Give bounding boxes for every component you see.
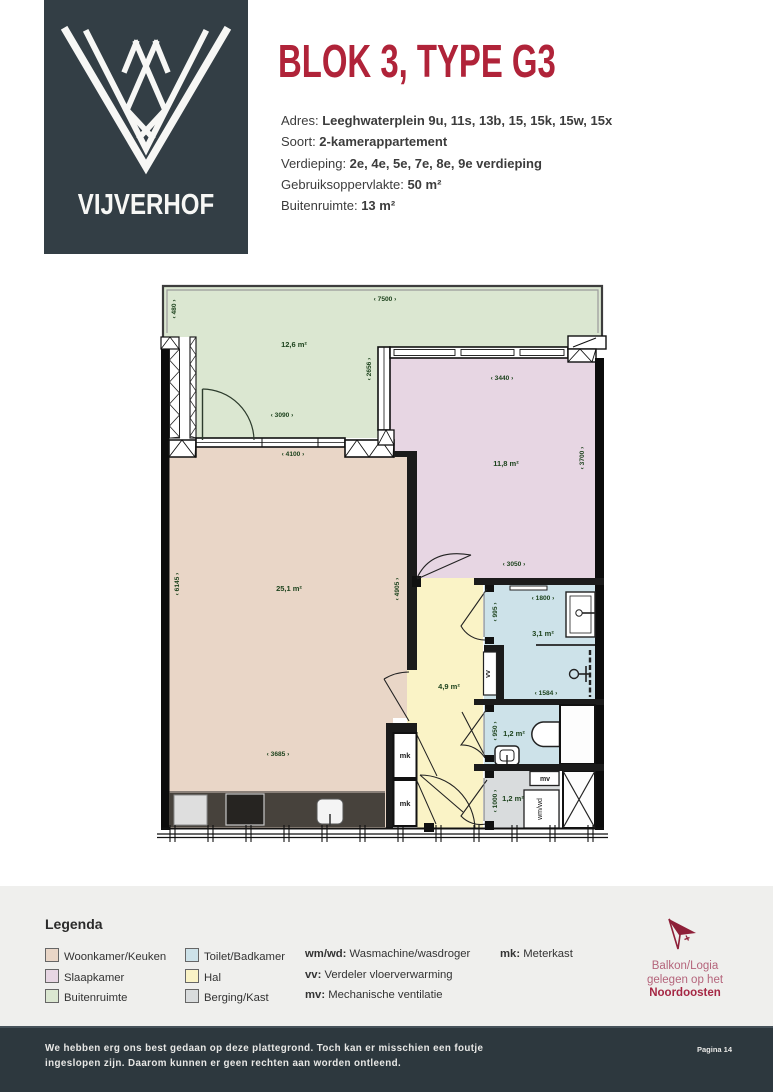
svg-text:‹ 3700 ›: ‹ 3700 › <box>579 447 586 470</box>
svg-text:1,2 m²: 1,2 m² <box>503 729 525 738</box>
svg-text:‹ 4905 ›: ‹ 4905 › <box>394 578 401 601</box>
svg-text:‹ 995 ›: ‹ 995 › <box>492 602 499 621</box>
svg-text:wm/wd: wm/wd <box>537 798 544 821</box>
svg-text:‹ 7500 ›: ‹ 7500 › <box>374 296 397 303</box>
svg-text:mv: mv <box>540 776 550 783</box>
svg-text:‹ 3090 ›: ‹ 3090 › <box>271 412 294 419</box>
svg-text:‹ 4100 ›: ‹ 4100 › <box>282 451 305 458</box>
svg-text:3,1 m²: 3,1 m² <box>532 629 554 638</box>
svg-text:‹ 1800 ›: ‹ 1800 › <box>532 595 555 602</box>
svg-text:‹ 480 ›: ‹ 480 › <box>171 299 178 318</box>
svg-text:‹ 6145 ›: ‹ 6145 › <box>174 573 181 596</box>
svg-text:mk: mk <box>400 799 412 808</box>
svg-text:‹ 3685 ›: ‹ 3685 › <box>267 751 290 758</box>
svg-text:‹ 950 ›: ‹ 950 › <box>492 721 499 740</box>
svg-text:‹ 3050 ›: ‹ 3050 › <box>503 561 526 568</box>
svg-text:vv: vv <box>485 670 492 678</box>
svg-text:mk: mk <box>400 751 412 760</box>
svg-text:11,8 m²: 11,8 m² <box>493 459 519 468</box>
svg-text:‹ 1584 ›: ‹ 1584 › <box>535 690 558 697</box>
svg-text:25,1 m²: 25,1 m² <box>276 584 302 593</box>
svg-text:‹ 3440 ›: ‹ 3440 › <box>491 375 514 382</box>
svg-text:12,6 m²: 12,6 m² <box>281 340 307 349</box>
svg-text:1,2 m²: 1,2 m² <box>502 794 524 803</box>
svg-text:‹ 1000 ›: ‹ 1000 › <box>492 790 499 813</box>
svg-text:4,9 m²: 4,9 m² <box>438 682 460 691</box>
svg-text:‹ 2656 ›: ‹ 2656 › <box>366 358 373 381</box>
